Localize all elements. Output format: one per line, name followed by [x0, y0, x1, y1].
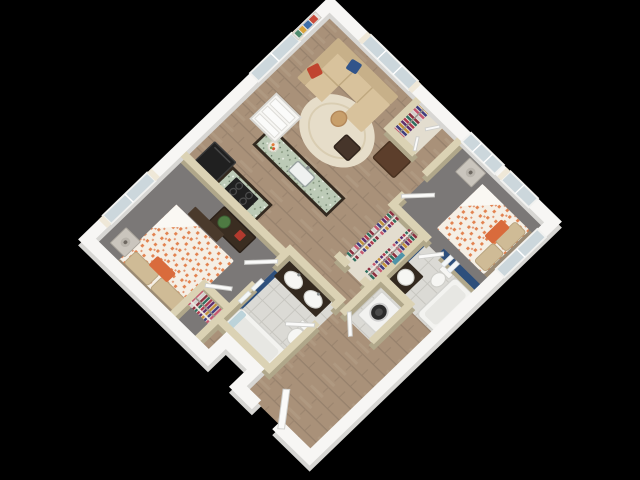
- canvas: [0, 0, 640, 480]
- floor-plan-render: [0, 0, 640, 480]
- bathroom-1-door: [285, 322, 314, 327]
- bedroom-2-door: [401, 193, 434, 198]
- bedroom-1-door: [245, 259, 278, 264]
- laundry-door: [347, 312, 352, 337]
